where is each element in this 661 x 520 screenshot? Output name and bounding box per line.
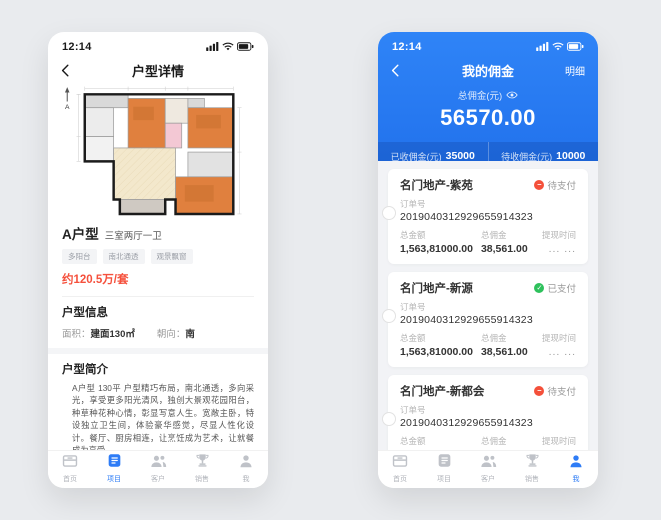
order-card[interactable]: 名门地产-新源 已支付 订单号 2019040312929655914323 总…	[388, 272, 588, 367]
status-badge: 待支付	[534, 178, 576, 192]
total-amount: 总金额1,563,81000.00	[400, 332, 481, 358]
order-select-radio[interactable]	[382, 412, 396, 426]
back-button[interactable]	[61, 64, 69, 77]
tab-projects[interactable]: 项目	[422, 453, 466, 484]
total-commission-label: 总佣金(元)	[458, 88, 502, 102]
svg-text:A: A	[65, 104, 70, 111]
floorplan-detail-screen: 12:14 户型详情	[48, 32, 268, 488]
status-time: 12:14	[62, 41, 92, 53]
withdraw-time: 提现时间... ...	[542, 229, 576, 255]
feature-tag: 多阳台	[62, 249, 97, 264]
tab-home[interactable]: 首页	[48, 454, 92, 484]
trophy-icon	[525, 453, 540, 473]
projects-icon	[437, 453, 452, 473]
order-number-label: 订单号	[400, 198, 576, 210]
person-icon	[569, 454, 583, 473]
order-number-label: 订单号	[400, 404, 576, 416]
page-title: 户型详情	[48, 61, 268, 80]
unit-name: A户型	[62, 223, 99, 243]
tab-bar: 首页 项目 客户 销售 我	[48, 450, 268, 488]
area-info: 面积：建面130㎡	[62, 326, 135, 340]
detail-link[interactable]: 明细	[565, 63, 585, 78]
status-bar: 12:14	[378, 32, 598, 56]
pending-icon	[534, 180, 544, 190]
commission-header: 12:14 我的佣金 明细 总佣金(元) 56570.00 已收佣金(元)350…	[378, 32, 598, 170]
tab-home[interactable]: 首页	[378, 454, 422, 484]
order-card[interactable]: 名门地产-紫苑 待支付 订单号 2019040312929655914323 总…	[388, 169, 588, 264]
tab-me[interactable]: 我	[554, 454, 598, 484]
order-select-radio[interactable]	[382, 206, 396, 220]
status-icons	[536, 38, 584, 56]
customers-icon	[150, 454, 167, 473]
wifi-icon	[552, 38, 564, 56]
tab-customers[interactable]: 客户	[136, 454, 180, 484]
status-time: 12:14	[392, 41, 422, 53]
order-number-label: 订单号	[400, 301, 576, 313]
battery-icon	[237, 38, 254, 56]
total-commission-value: 56570.00	[378, 105, 598, 131]
tab-sales[interactable]: 销售	[510, 453, 554, 484]
order-card[interactable]: 名门地产-新都会 待支付 订单号 2019040312929655914323 …	[388, 375, 588, 453]
signal-icon	[206, 38, 219, 56]
order-select-radio[interactable]	[382, 309, 396, 323]
paid-icon	[534, 283, 544, 293]
total-commission: 总佣金38,561.00	[481, 332, 542, 358]
tab-projects[interactable]: 项目	[92, 453, 136, 484]
total-amount: 总金额1,563,81000.00	[400, 229, 481, 255]
compass-icon: A	[65, 87, 70, 111]
divider	[62, 296, 254, 297]
eye-icon[interactable]	[506, 91, 518, 99]
feature-tag: 南北通透	[103, 249, 145, 264]
projects-icon	[107, 453, 122, 473]
back-button[interactable]	[391, 64, 399, 77]
order-number: 2019040312929655914323	[400, 211, 576, 223]
nav-bar: 我的佣金 明细	[378, 58, 598, 83]
withdraw-time: 提现时间... ...	[542, 332, 576, 358]
order-title: 名门地产-新源	[400, 280, 473, 296]
status-badge: 已支付	[534, 281, 576, 295]
total-commission: 总佣金38,561.00	[481, 229, 542, 255]
status-badge: 待支付	[534, 384, 576, 398]
status-icons	[206, 38, 254, 56]
nav-bar: 户型详情	[48, 58, 268, 83]
tab-customers[interactable]: 客户	[466, 454, 510, 484]
order-title: 名门地产-新都会	[400, 383, 484, 399]
section-title-intro: 户型简介	[62, 361, 254, 377]
facing-info: 朝向：南	[157, 326, 195, 340]
home-icon	[392, 454, 408, 473]
trophy-icon	[195, 453, 210, 473]
feature-tags: 多阳台 南北通透 观景飘窗	[62, 249, 254, 264]
order-number: 2019040312929655914323	[400, 314, 576, 326]
tab-me[interactable]: 我	[224, 454, 268, 484]
unit-layout: 三室两厅一卫	[105, 228, 162, 242]
status-bar: 12:14	[48, 32, 268, 56]
wifi-icon	[222, 38, 234, 56]
person-icon	[239, 454, 253, 473]
section-separator	[48, 348, 268, 354]
signal-icon	[536, 38, 549, 56]
tab-sales[interactable]: 销售	[180, 453, 224, 484]
feature-tag: 观景飘窗	[151, 249, 193, 264]
order-list: 名门地产-紫苑 待支付 订单号 2019040312929655914323 总…	[378, 161, 598, 453]
home-icon	[62, 454, 78, 473]
tab-bar: 首页 项目 客户 销售 我	[378, 450, 598, 488]
unit-price: 约120.5万/套	[62, 271, 254, 287]
commission-screen: 12:14 我的佣金 明细 总佣金(元) 56570.00 已收佣金(元)350…	[378, 32, 598, 488]
battery-icon	[567, 38, 584, 56]
section-title-info: 户型信息	[62, 304, 254, 320]
customers-icon	[480, 454, 497, 473]
pending-icon	[534, 386, 544, 396]
unit-description: A户型 130平 户型精巧布局，南北通透，多向采光，享受更多阳光清风，独创大景观…	[72, 382, 254, 457]
order-title: 名门地产-紫苑	[400, 177, 473, 193]
order-number: 2019040312929655914323	[400, 417, 576, 429]
floor-plan-image: A	[48, 83, 268, 219]
